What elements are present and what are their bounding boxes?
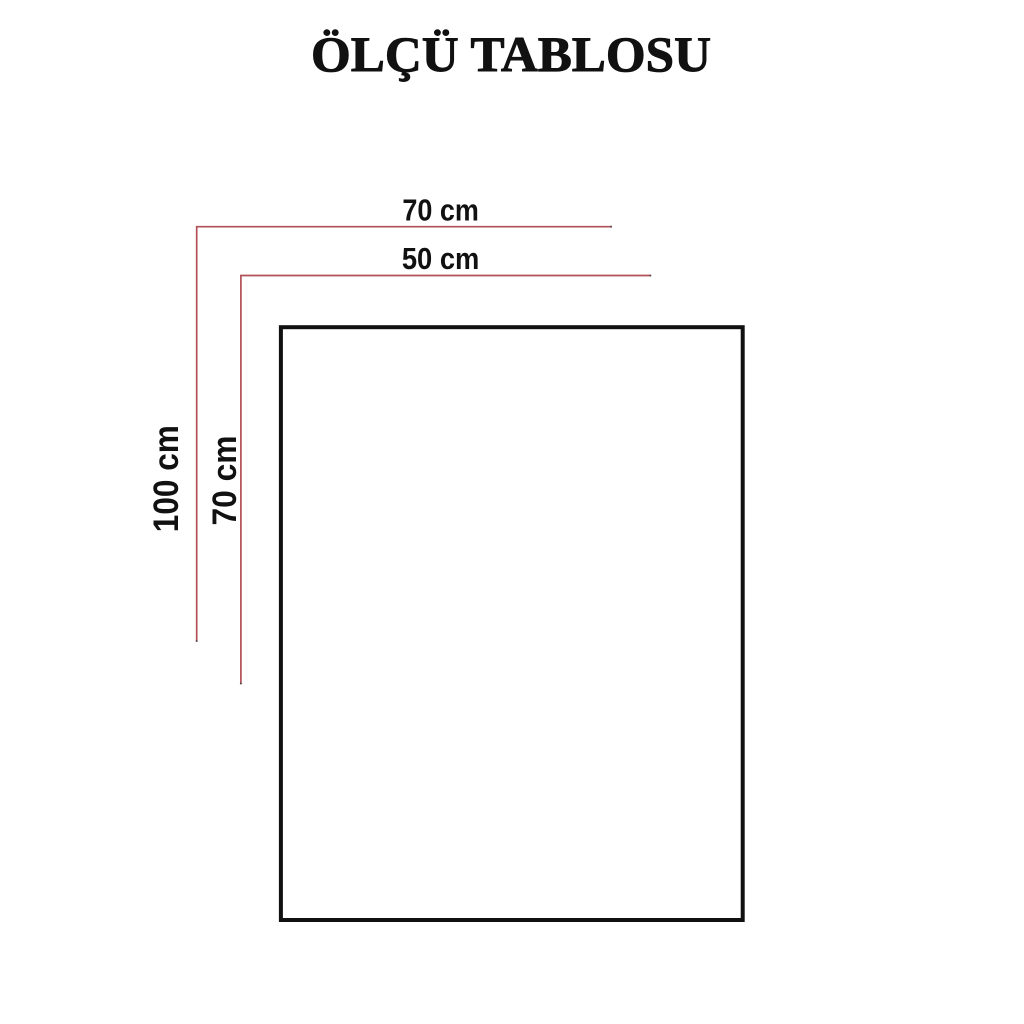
svg-text:ÖLÇÜ TABLOSU: ÖLÇÜ TABLOSU bbox=[311, 27, 711, 82]
svg-text:70 cm: 70 cm bbox=[402, 193, 479, 227]
svg-text:50 cm: 50 cm bbox=[402, 242, 480, 276]
svg-text:100 cm: 100 cm bbox=[146, 425, 186, 532]
svg-text:70 cm: 70 cm bbox=[206, 436, 244, 526]
